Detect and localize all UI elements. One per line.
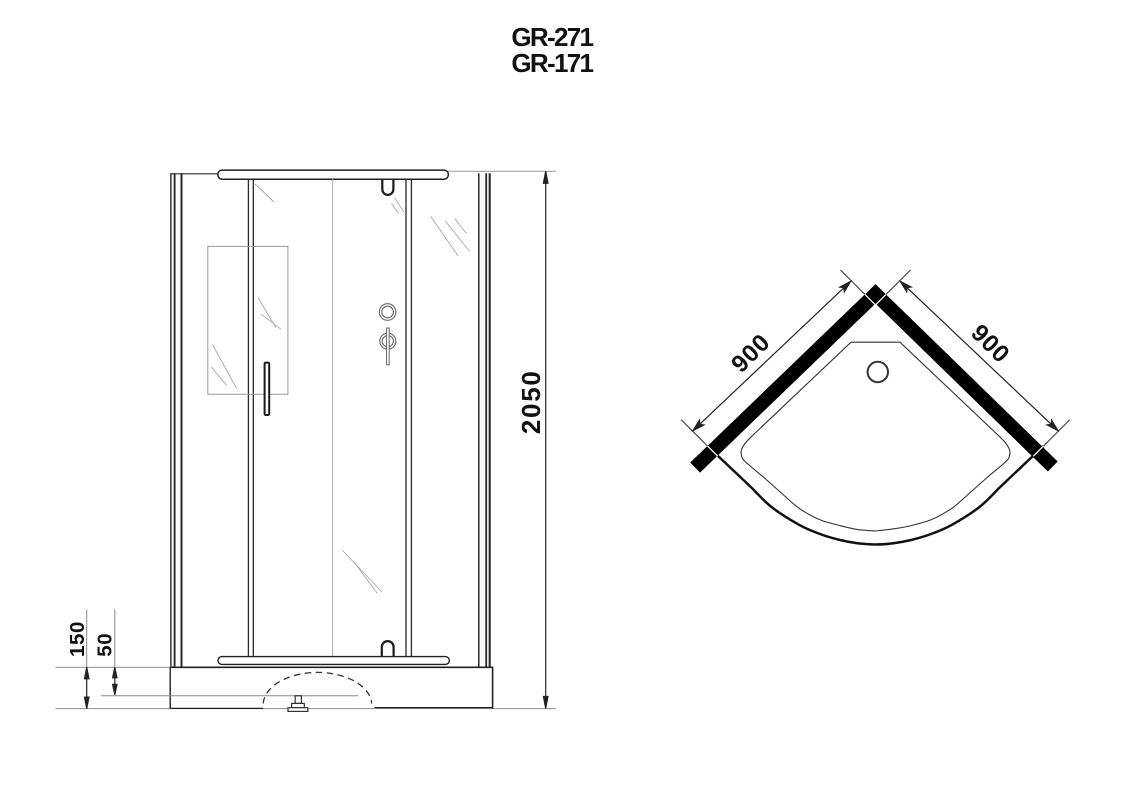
svg-text:GR-171: GR-171 — [511, 48, 593, 78]
svg-text:900: 900 — [726, 329, 775, 378]
svg-text:900: 900 — [965, 319, 1014, 368]
svg-text:50: 50 — [94, 633, 117, 657]
svg-text:150: 150 — [66, 621, 89, 657]
svg-text:2050: 2050 — [516, 369, 546, 434]
